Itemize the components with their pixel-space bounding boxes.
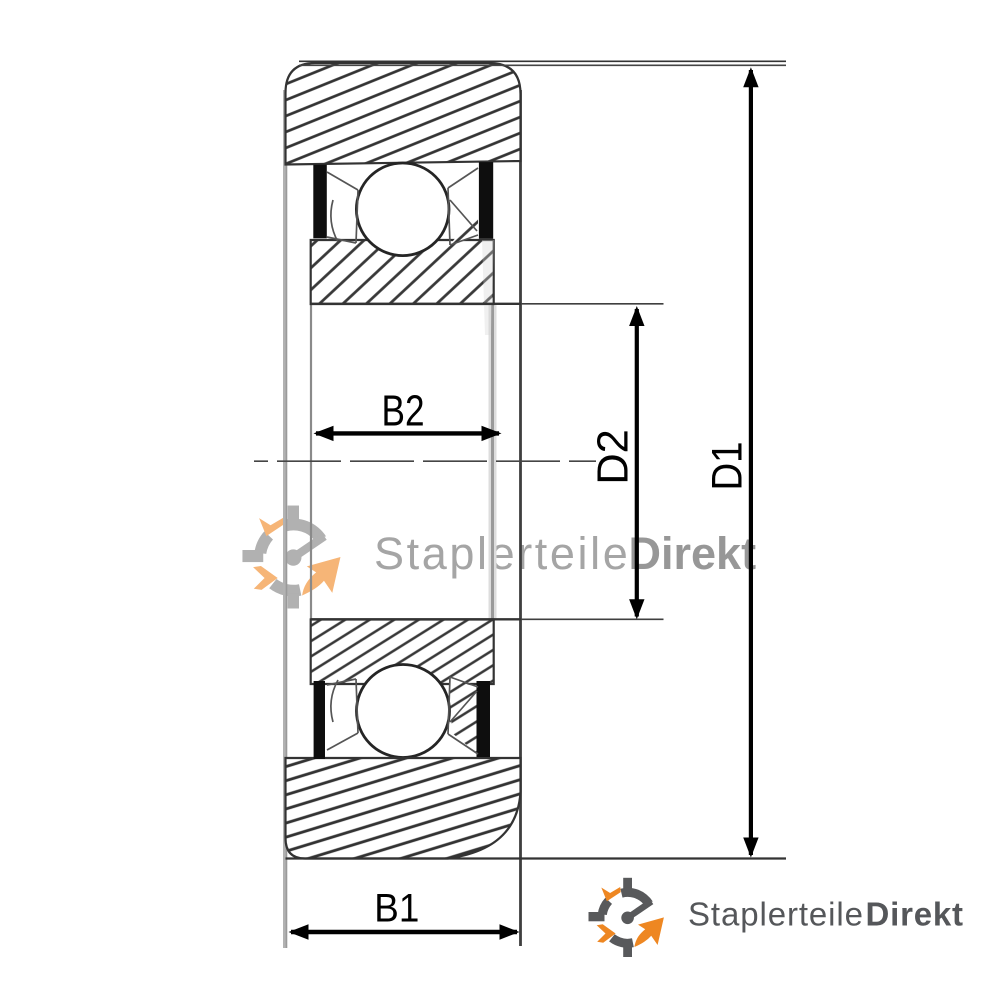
svg-text:B1: B1 <box>374 887 419 931</box>
svg-text:Staplerteile: Staplerteile <box>374 528 630 579</box>
svg-text:Direkt: Direkt <box>866 896 964 933</box>
svg-text:D1: D1 <box>704 442 752 491</box>
svg-text:B2: B2 <box>382 388 425 436</box>
svg-text:Staplerteile: Staplerteile <box>688 896 864 933</box>
svg-text:Direkt: Direkt <box>629 528 757 579</box>
svg-text:D2: D2 <box>590 429 638 485</box>
